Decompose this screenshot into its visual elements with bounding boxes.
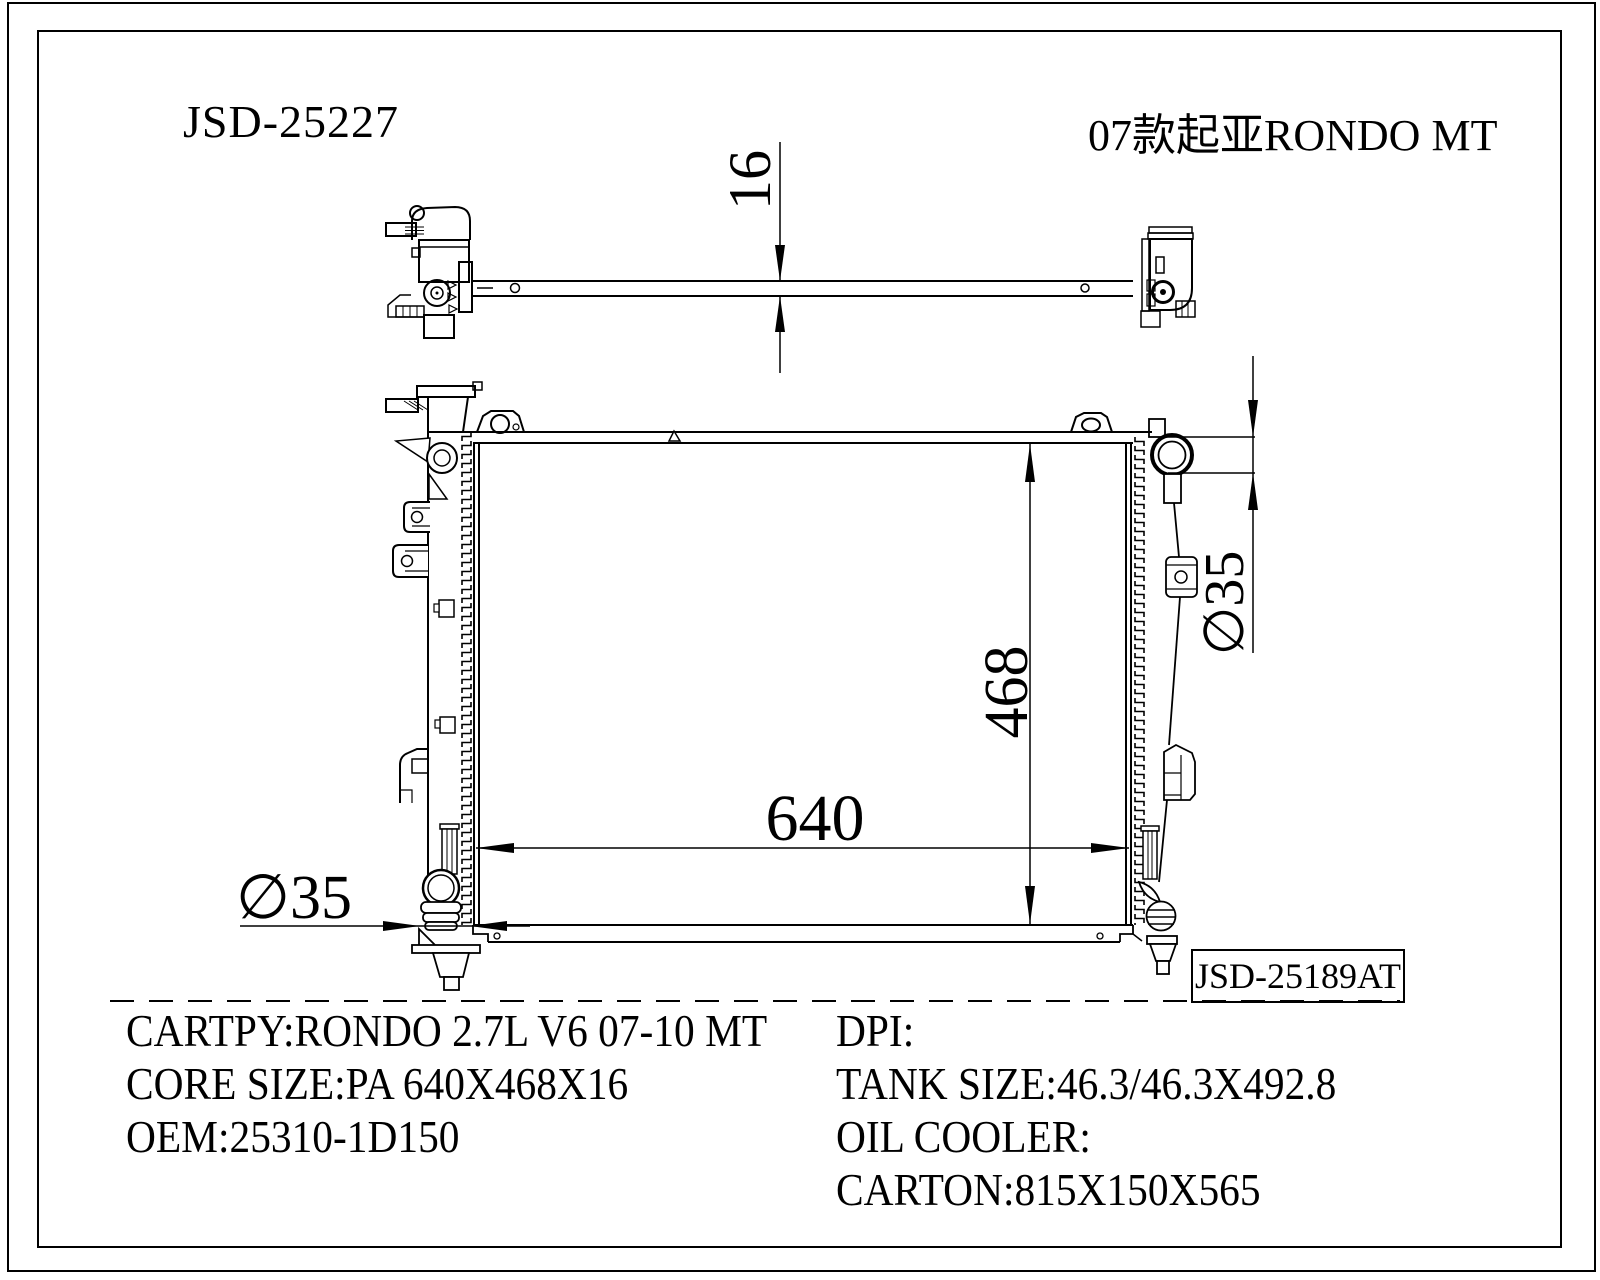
spec-block-right: DPI: TANK SIZE:46.3/46.3X492.8 OIL COOLE… [836, 1004, 1392, 1216]
drawing-sheet: { "colors": { "line": "#000000", "backgr… [0, 0, 1600, 1280]
front-right-tank [1139, 419, 1197, 974]
dim-core-thickness: 16 [717, 142, 785, 373]
dim-label-outlet-d35: ∅35 [236, 864, 352, 932]
top-view [386, 206, 1195, 338]
dim-core-width: 640 [476, 782, 1129, 855]
dim-label-468: 468 [973, 646, 1041, 739]
ref-label-box: JSD-25189AT [1192, 950, 1404, 1002]
spec-tank-size: TANK SIZE:46.3/46.3X492.8 [836, 1057, 1336, 1110]
top-view-core-bar [473, 281, 1133, 296]
spec-dpi: DPI: [836, 1004, 1336, 1057]
dim-inlet-diameter: ∅35 [1163, 356, 1258, 655]
front-core [457, 411, 1152, 942]
spec-cartpy: CARTPY:RONDO 2.7L V6 07-10 MT [126, 1004, 767, 1057]
front-view [386, 382, 1197, 990]
spec-oem: OEM:25310-1D150 [126, 1110, 767, 1163]
spec-oil-cooler: OIL COOLER: [836, 1110, 1336, 1163]
dim-label-16: 16 [717, 150, 783, 210]
dim-outlet-diameter: ∅35 [236, 864, 530, 932]
spec-carton: CARTON:815X150X565 [836, 1163, 1336, 1216]
dim-core-height: 468 [973, 443, 1041, 925]
spec-block-left: CARTPY:RONDO 2.7L V6 07-10 MT CORE SIZE:… [126, 1004, 838, 1163]
top-view-left-tank [386, 206, 472, 338]
dim-label-inlet-d35: ∅35 [1194, 551, 1256, 656]
spec-core-size: CORE SIZE:PA 640X468X16 [126, 1057, 767, 1110]
ref-label-text: JSD-25189AT [1195, 956, 1401, 996]
dim-label-640: 640 [766, 782, 865, 855]
top-view-right-tank [1141, 227, 1195, 327]
